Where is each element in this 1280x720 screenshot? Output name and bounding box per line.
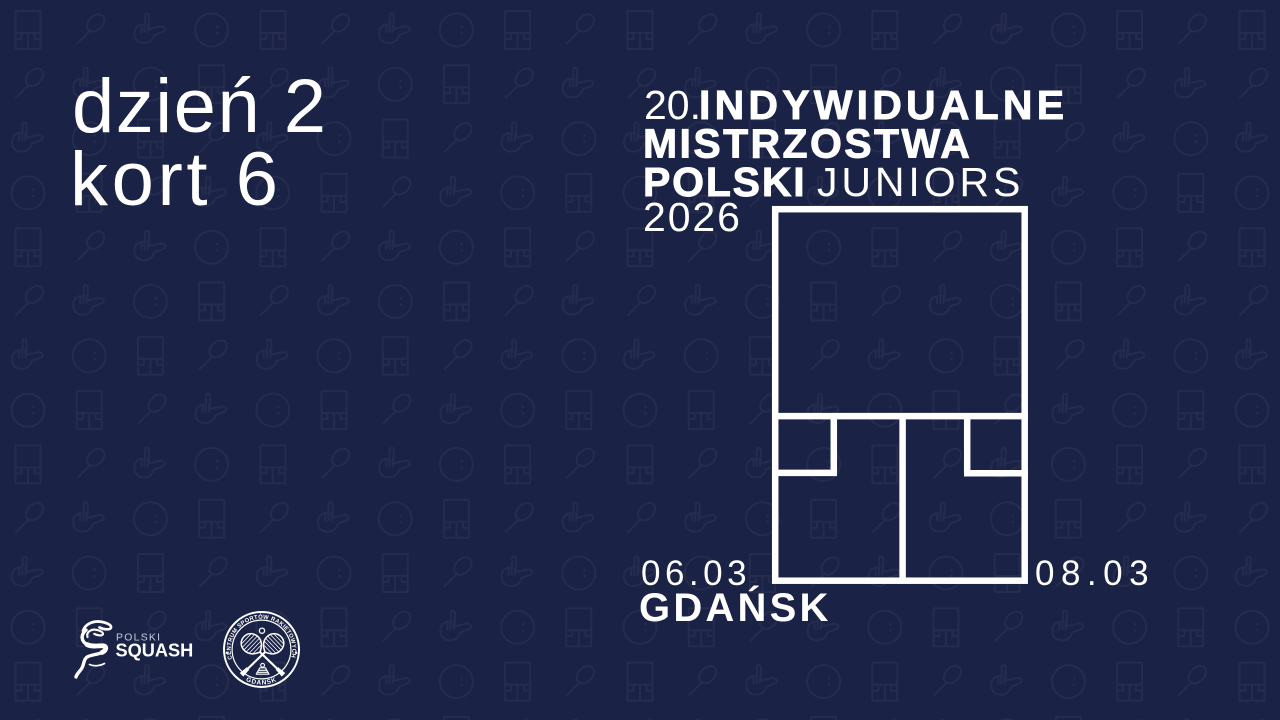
svg-text:kort 6: kort 6 xyxy=(70,137,282,222)
svg-text:SQUASH: SQUASH xyxy=(116,641,194,661)
svg-text:2026: 2026 xyxy=(643,194,742,240)
svg-text:GDAŃSK: GDAŃSK xyxy=(639,585,832,630)
svg-text:JUNIORS: JUNIORS xyxy=(817,159,1024,205)
svg-text:08.03: 08.03 xyxy=(1035,554,1155,593)
